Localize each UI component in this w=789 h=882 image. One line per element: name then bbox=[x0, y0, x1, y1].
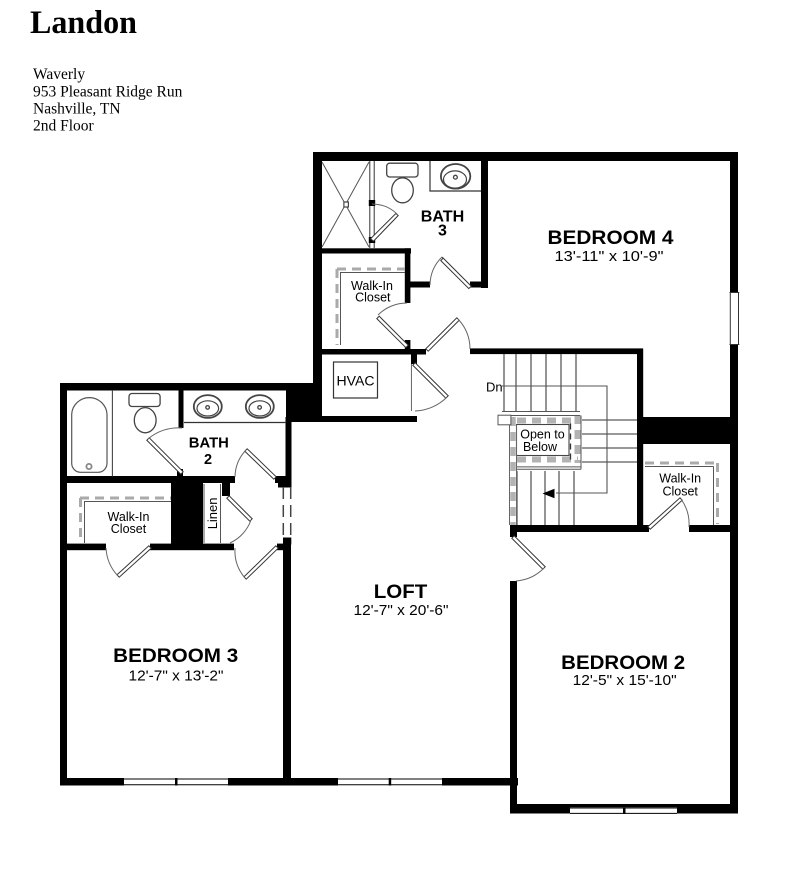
svg-text:Below: Below bbox=[523, 440, 558, 454]
svg-text:BEDROOM 4: BEDROOM 4 bbox=[548, 228, 674, 249]
svg-text:LOFT: LOFT bbox=[374, 581, 428, 603]
svg-text:2: 2 bbox=[204, 452, 212, 468]
svg-text:BATH: BATH bbox=[189, 436, 229, 452]
svg-text:12'-5" x 15'-10": 12'-5" x 15'-10" bbox=[573, 672, 677, 689]
svg-text:Closet: Closet bbox=[355, 291, 391, 305]
svg-text:Landon: Landon bbox=[30, 5, 137, 41]
svg-text:2nd Floor: 2nd Floor bbox=[33, 118, 95, 135]
svg-text:Linen: Linen bbox=[205, 497, 220, 529]
svg-text:BEDROOM 3: BEDROOM 3 bbox=[113, 646, 238, 667]
svg-text:Walk-In: Walk-In bbox=[659, 472, 701, 486]
svg-text:3: 3 bbox=[438, 223, 447, 240]
svg-text:Closet: Closet bbox=[662, 485, 698, 499]
svg-text:Dn: Dn bbox=[486, 380, 503, 395]
svg-text:Nashville, TN: Nashville, TN bbox=[33, 101, 121, 118]
svg-text:13'-11" x 10'-9": 13'-11" x 10'-9" bbox=[555, 248, 664, 265]
svg-text:Waverly: Waverly bbox=[33, 66, 85, 83]
svg-text:Closet: Closet bbox=[111, 522, 147, 536]
svg-text:BEDROOM 2: BEDROOM 2 bbox=[561, 653, 685, 674]
svg-text:953 Pleasant Ridge Run: 953 Pleasant Ridge Run bbox=[33, 84, 183, 101]
svg-text:12'-7" x 20'-6": 12'-7" x 20'-6" bbox=[354, 602, 449, 619]
svg-text:HVAC: HVAC bbox=[337, 374, 375, 389]
svg-text:12'-7" x 13'-2": 12'-7" x 13'-2" bbox=[129, 668, 224, 685]
